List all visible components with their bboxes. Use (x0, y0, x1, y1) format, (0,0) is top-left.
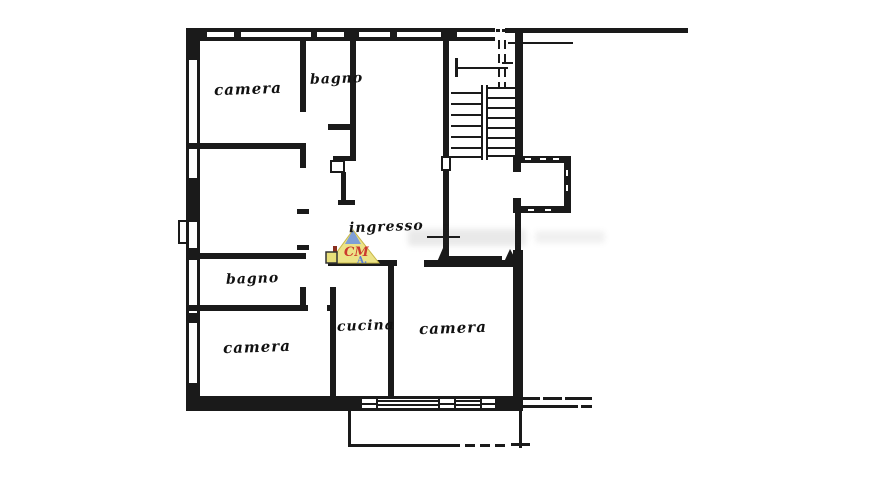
balcony (348, 410, 530, 448)
elevator-shaft (513, 156, 571, 213)
watermark-letters-2: A. (356, 256, 367, 266)
room-label-cucina: cucina (337, 317, 395, 335)
room-label-ingresso: ingresso (349, 218, 424, 237)
staircase (441, 32, 523, 262)
room-label-camera-bottom-right: camera (419, 318, 487, 338)
watermark-ghost-text (408, 229, 526, 246)
room-label-camera-top-left: camera (214, 79, 282, 99)
parapet-wall (523, 397, 592, 408)
room-label-camera-bottom-left: camera (223, 337, 291, 357)
floorplan-page: CM A. camera bagno ingresso bagno camera… (0, 0, 880, 496)
bottom-wall (186, 396, 523, 411)
watermark-ghost-text-2 (535, 231, 605, 243)
room-label-bagno-middle: bagno (226, 270, 280, 288)
left-wall (178, 28, 200, 411)
floorplan-drawing: CM A. (0, 0, 880, 496)
top-wall (186, 28, 688, 44)
room-label-bagno-top: bagno (310, 70, 364, 88)
